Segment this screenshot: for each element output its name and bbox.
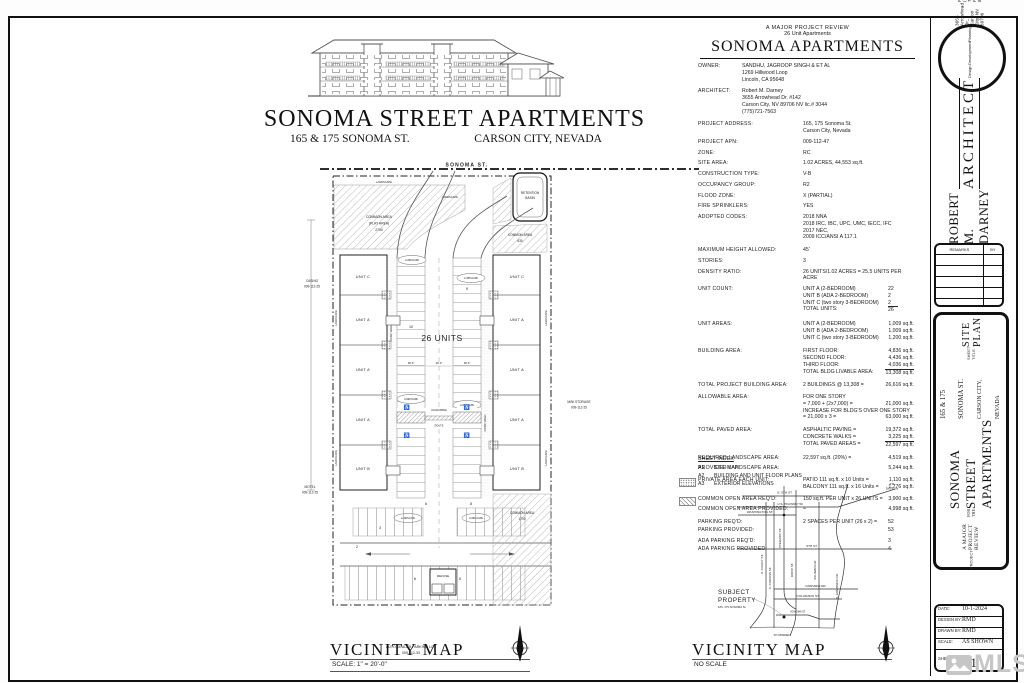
spec-text: X (PARTIAL): [803, 193, 833, 200]
vicinity-map-title: VICINITY MAP: [692, 640, 826, 660]
landscape-label: LANDSCAPE: [404, 398, 418, 401]
common-play-area-value: 2700: [375, 228, 383, 232]
spec-row: ZONE:RC: [698, 150, 914, 157]
spec-text: V-B: [803, 171, 811, 178]
wheelchair-icon: ♿: [404, 404, 410, 411]
common-play-label: COMMON AREA: [366, 215, 393, 219]
sheet-title-label: SHEET TITLE: [966, 347, 976, 360]
landscape-label: LANDSCAPE: [334, 310, 338, 326]
spec-text: 009-112-47: [803, 139, 829, 146]
remarks-table: REMARKS BY: [934, 243, 1004, 307]
spec-label: ALLOWABLE AREA:: [698, 394, 803, 421]
stall-count: 2: [356, 545, 358, 549]
sheet-index-row: A1SITE MAP: [698, 465, 914, 472]
stall-count: 6: [425, 502, 427, 506]
architect-tagline: Design Development Planning: [967, 26, 972, 78]
spec-value: 4,436 sq.ft.: [888, 355, 914, 362]
review-label: A MAJOR PROJECT REVIEW: [962, 517, 980, 550]
spec-value: 4,836 sq.ft.: [888, 348, 914, 355]
date-label: DATE:: [938, 606, 962, 611]
unit-label: UNIT A: [356, 318, 370, 322]
spec-text: SANDHU, JAGROOP SINGH & ET AL: [742, 63, 830, 70]
remarks-row: [936, 299, 1002, 307]
spec-label: TOTAL PAVED AREA:: [698, 427, 803, 448]
mls-watermark-text: MLS: [974, 650, 1024, 679]
landscape-label: LANDSCAPE: [544, 310, 548, 326]
spec-row: MAXIMUM HEIGHT ALLOWED:45': [698, 247, 914, 254]
spec-text: 1269 Hillwood Loop: [742, 70, 788, 77]
spec-text: UNIT A (2-BEDROOM): [803, 321, 856, 328]
project-main-title: SONOMA STREET APARTMENTS: [262, 106, 647, 133]
design-by-value: RMD: [962, 617, 976, 623]
wheelchair-icon: ♿: [464, 404, 470, 411]
title-rule: [692, 659, 892, 660]
subject-property-address: 165, 175 SONOMA St.: [718, 605, 746, 609]
street-name: SONOMA ST.: [790, 610, 806, 614]
drawn-by-label: DRAWN BY:: [938, 628, 962, 633]
spec-row: BUILDING AREA:FIRST FLOOR:4,836 sq.ft.SE…: [698, 348, 914, 376]
spec-text: UNIT B (ADA 2-BEDROOM): [803, 293, 868, 300]
design-by-label: DESIGN BY:: [938, 617, 962, 622]
mls-logo-icon: [946, 655, 972, 675]
street-name: 5TH ST.: [806, 544, 817, 548]
spec-text: 45': [803, 247, 810, 254]
subtitle-city: CARSON CITY, NEVADA: [474, 133, 602, 145]
site-map-scale: SCALE: 1" = 20'-0": [332, 661, 387, 668]
remarks-row: [936, 255, 1002, 266]
architect-name: ROBERT M. DARNEY: [947, 189, 992, 244]
spec-text: RC: [803, 150, 811, 157]
common-area-east-value: 630: [517, 239, 523, 243]
common-play-area: [334, 185, 465, 249]
street-name: ROOP ST.: [790, 563, 794, 578]
building-elevation-drawing: [302, 33, 564, 105]
spec-value: 13,308 sq.ft.: [885, 369, 914, 377]
dimension-label: 18'-6": [408, 361, 415, 365]
spec-label: TOTAL PROJECT BUILDING AREA:: [698, 382, 803, 389]
titleblock-city: CARSON CITY, NEVADA: [977, 380, 1001, 419]
unit-label: UNIT A: [510, 368, 524, 372]
spec-text: UNIT C (two story 3-BEDROOM): [803, 300, 879, 307]
spec-row: ARCHITECT:Robert M. Darney3655 Arrowhead…: [698, 88, 914, 115]
unit-label: UNIT A: [510, 318, 524, 322]
spec-row: TOTAL PROJECT BUILDING AREA:2 BUILDINGS …: [698, 382, 914, 389]
remarks-row: [936, 288, 1002, 299]
spec-row: OCCUPANCY GROUP:R2: [698, 182, 914, 189]
spec-row: DENSITY RATIO:26 UNITS/1.02 ACRES = 25.5…: [698, 269, 914, 283]
spec-text: TOTAL UNITS:: [803, 306, 838, 314]
architect-profession: ARCHITECT: [959, 78, 980, 189]
spec-row: PROJECT ADDRESS:165, 175 Sonoma St.Carso…: [698, 121, 914, 135]
north-arrow-icon: [508, 624, 532, 664]
spec-text: Carson City, NV 89706 NV lic.# 3044: [742, 102, 827, 109]
drawn-by-value: RMD: [962, 628, 976, 634]
accessible-route-label: ROUTE: [435, 425, 444, 428]
spec-text: 2009 ICC/ANSI A 117.1: [803, 234, 857, 241]
spec-row: PROJECT APN:009-112-47: [698, 139, 914, 146]
street-name: SALIMAN RD.: [813, 560, 817, 580]
spec-text: SECOND FLOOR:: [803, 355, 846, 362]
spec-row: ADOPTED CODES:2018 NNA2018 IRC, IBC, UPC…: [698, 214, 914, 241]
spec-value: 3,225 sq.ft.: [888, 434, 914, 441]
common-area-se-value: 1700: [518, 517, 525, 521]
spec-value: 19,372 sq.ft.: [885, 427, 914, 434]
subtitle-address: 165 & 175 SONOMA ST.: [290, 133, 410, 145]
spec-value: 21,000 sq.ft.: [885, 401, 914, 408]
neighbor-casino-apn: 009-112-25: [304, 285, 320, 289]
project-review-header: A MAJOR PROJECT REVIEW 26 Unit Apartment…: [700, 25, 915, 59]
spec-text: 3655 Arrowhead Dr. #142: [742, 95, 801, 102]
units-line: 26 Unit Apartments: [700, 31, 915, 37]
date-value: 10-1-2024: [962, 606, 987, 612]
tagline-item: Design: [967, 65, 972, 77]
titleblock-divider: [930, 18, 931, 676]
neighbor-casino-label: CASINO: [306, 279, 319, 283]
spec-value: 4,036 sq.ft.: [888, 362, 914, 369]
unit-label: UNIT A: [356, 418, 370, 422]
refuse-enclosure: REFUSE: [430, 569, 456, 595]
spec-value: 1,200 sq.ft.: [888, 335, 914, 342]
vicinity-map-drawing: E. 5TH ST. U.S. HIGHWAY 50 WASHINGTON ST…: [690, 476, 915, 644]
tagline-item: Planning: [967, 26, 972, 42]
spec-text: 2018 NNA: [803, 214, 827, 221]
wheelchair-icon: ♿: [404, 432, 410, 439]
spec-text: UNIT A (2-BEDROOM): [803, 286, 856, 293]
spec-label: UNIT COUNT:: [698, 286, 803, 314]
stall-count: 10: [409, 325, 413, 329]
landscape-label: LANDSCAPE: [464, 277, 478, 280]
spec-text: 3: [803, 258, 806, 265]
spec-label: OCCUPANCY GROUP:: [698, 182, 803, 189]
spec-value: 1,009 sq.ft.: [888, 321, 914, 328]
drawing-sheet: { "sheet": { "header": {"line1": "A MAJO…: [0, 0, 1024, 683]
spec-text: FIRST FLOOR:: [803, 348, 839, 355]
accessible-route: ACCESSIBLE ROUTE: [397, 408, 481, 428]
spec-text: Robert M. Darney: [742, 88, 783, 95]
street-name: FAIRVIEW DR.: [806, 584, 827, 588]
spec-value: 2: [888, 300, 898, 307]
neighbor-motel-label: MOTEL: [305, 485, 316, 489]
title-rule: [330, 659, 530, 660]
to-minden-label: TO MINDEN: [773, 633, 790, 637]
remarks-row: [936, 277, 1002, 288]
spec-value: 22: [888, 286, 898, 293]
street-name: S. CARSON ST.: [768, 567, 772, 589]
spec-text: Carson City, Nevada: [803, 128, 850, 135]
spec-row: CONSTRUCTION TYPE:V-B: [698, 171, 914, 178]
unit-label: UNIT B: [510, 467, 524, 471]
spec-value: 26: [888, 306, 898, 314]
spec-label: ZONE:: [698, 150, 803, 157]
spec-row: UNIT COUNT:UNIT A (2-BEDROOM)22UNIT B (A…: [698, 286, 914, 314]
spec-row: SITE AREA:1.02 ACRES, 44,553 sq.ft.: [698, 160, 914, 167]
landscape-label: LANDSCAPE: [334, 450, 338, 466]
spec-label: DENSITY RATIO:: [698, 269, 803, 283]
spec-label: UNIT AREAS:: [698, 321, 803, 341]
common-area-east-label: COMMON AREA: [508, 233, 533, 237]
spec-label: PROJECT ADDRESS:: [698, 121, 803, 135]
street-name: COLORADO ST.: [796, 594, 819, 598]
stall-count: 8: [470, 502, 472, 506]
spec-row: STORIES:3: [698, 258, 914, 265]
spec-text: 26 UNITS/1.02 ACRES = 25.5 UNITS PER ACR…: [803, 269, 914, 283]
refuse-label: REFUSE: [437, 574, 449, 578]
spec-text: R2: [803, 182, 810, 189]
landscape-label: LANDSCAPE: [442, 195, 458, 199]
street-name: E. 5TH ST.: [778, 491, 793, 495]
spec-label: FIRE SPRINKLERS:: [698, 203, 803, 210]
stall-count: 9: [466, 287, 468, 291]
scale-value: AS SHOWN: [962, 639, 993, 645]
neighbor-motel-apn: 009-112-25: [302, 491, 318, 495]
retention-basin-label: RETENTION: [521, 191, 540, 195]
spec-text: YES: [803, 203, 813, 210]
spec-row: ALLOWABLE AREA:FOR ONE STORY= 7,000 + (2…: [698, 394, 914, 421]
spec-value: 63,000 sq.ft.: [885, 414, 914, 421]
architect-address: 3655 Arrowhead Dr., Carson City, NV 8970…: [954, 3, 984, 26]
subject-property-label: PROPERTY: [718, 597, 756, 604]
architect-block: ROBERT M. DARNEY ARCHITECT Design Develo…: [933, 96, 1005, 244]
common-play-label: (PLAY AREA): [369, 222, 390, 226]
spec-text: INCREASE FOR BLDG'S OVER ONE STORY: [803, 408, 910, 415]
spec-text: 2018 IRC, IBC, UPC, UMC, IECC, IFC: [803, 221, 892, 228]
spec-text: = 21,000 x 3 =: [803, 414, 836, 421]
vicinity-map-scale: NO SCALE: [694, 661, 727, 668]
subject-property-dot: [783, 616, 786, 619]
street-name: S. EDMONDS DR.: [835, 573, 839, 599]
spec-text: ASPHALTIC PAVING =: [803, 427, 856, 434]
titleblock-project-title: SONOMA STREET APARTMENTS: [947, 419, 995, 509]
dimension-label: 26'-0": [436, 361, 443, 365]
spec-label: CONSTRUCTION TYPE:: [698, 171, 803, 178]
landscape-label: LANDSCAPE: [544, 450, 548, 466]
accessible-route-label: ACCESSIBLE: [431, 409, 447, 412]
unit-label: UNIT C: [510, 275, 524, 279]
spec-text: FOR ONE STORY: [803, 394, 846, 401]
spec-label: PROJECT APN:: [698, 139, 803, 146]
spec-label: MAXIMUM HEIGHT ALLOWED:: [698, 247, 803, 254]
title-rule: [330, 671, 530, 672]
scale-label: SCALE:: [938, 639, 962, 644]
retention-basin-label: BASIN: [525, 196, 535, 200]
spec-text: TOTAL BLDG LIVABLE AREA:: [803, 369, 873, 377]
by-header: BY: [984, 245, 1002, 254]
neighbor-ministorage-apn: 009-112-25: [571, 406, 587, 410]
unit-label: UNIT C: [356, 275, 370, 279]
spec-label: OWNER:: [698, 63, 742, 83]
spec-row: TOTAL PAVED AREA:ASPHALTIC PAVING =19,37…: [698, 427, 914, 448]
spec-value: 2: [888, 293, 898, 300]
dimension-label: 18'-6": [464, 361, 471, 365]
to-dayton-label: TO: [890, 482, 895, 486]
for-the-label: FOR THE: [966, 509, 976, 517]
street-label: SONOMA ST.: [446, 163, 489, 169]
spec-text: 165, 175 Sonoma St.: [803, 121, 852, 128]
spec-text: CONCRETE WALKS =: [803, 434, 856, 441]
spec-text: Lincoln, CA 95648: [742, 77, 784, 84]
site-plan-drawing: SONOMA ST. COMMON AREA (PLAY AREA) 2700 …: [295, 158, 705, 663]
architect-phone: PHONE: (775)721-7563 FAX: 882-9430: [957, 0, 982, 2]
spec-text: 2 BUILDINGS @ 13,308 =: [803, 382, 864, 389]
tagline-item: Development: [967, 42, 972, 66]
north-arrow-icon: [874, 624, 898, 664]
sheet-index-heading: SHEET INDEX: [698, 456, 914, 463]
street-name: U.S. HIGHWAY 50: [777, 502, 803, 506]
spec-text: THIRD FLOOR:: [803, 362, 840, 369]
unit-label: UNIT A: [356, 368, 370, 372]
common-area-se-label: COMMON AREA: [510, 511, 535, 515]
remarks-row: [936, 266, 1002, 277]
spec-label: ADOPTED CODES:: [698, 214, 803, 241]
spec-label: FLOOD ZONE:: [698, 193, 803, 200]
spec-label: BUILDING AREA:: [698, 348, 803, 376]
mls-watermark: MLS: [946, 650, 1024, 679]
spec-text: 2017 NEC,: [803, 228, 828, 235]
spec-row: FIRE SPRINKLERS:YES: [698, 203, 914, 210]
neighbor-ministorage-label: MINI STORAGE: [567, 400, 590, 404]
spec-text: UNIT B (ADA 2-BEDROOM): [803, 328, 868, 335]
wheelchair-icon: ♿: [464, 432, 470, 439]
spec-text: (775)721-7563: [742, 109, 776, 116]
spec-value: 1,009 sq.ft.: [888, 328, 914, 335]
spec-text: 1.02 ACRES, 44,553 sq.ft.: [803, 160, 864, 167]
titleblock-address: 165 & 175 SONOMA ST.: [940, 379, 965, 419]
street-name: WASHINGTON ST.: [747, 510, 774, 514]
apartments-title: SONOMA APARTMENTS: [700, 38, 915, 59]
spec-label: SITE AREA:: [698, 160, 803, 167]
project-label: PROJECT: [969, 550, 974, 569]
landscape-label: LANDSCAPE: [376, 180, 392, 184]
spec-label: STORIES:: [698, 258, 803, 265]
project-titleblock: PROJECT A MAJOR PROJECT REVIEW FOR THE S…: [933, 312, 1009, 570]
spec-text: UNIT C (two story 3-BEDROOM): [803, 335, 879, 342]
landscape-label: LANDSCAPE: [405, 259, 419, 262]
spec-row: UNIT AREAS:UNIT A (2-BEDROOM)1,009 sq.ft…: [698, 321, 914, 341]
spec-text: = 7,000 + (2x7,000) =: [803, 401, 853, 408]
project-subtitle: 165 & 175 SONOMA ST. CARSON CITY, NEVADA: [290, 133, 602, 145]
remarks-header: REMARKS: [936, 245, 984, 254]
conc-walk-label: CONC WALK: [483, 414, 487, 431]
to-dayton-label: DAYTON: [886, 487, 899, 491]
spec-row: OWNER:SANDHU, JAGROOP SINGH & ET AL1269 …: [698, 63, 914, 83]
unit-label: UNIT B: [356, 467, 370, 471]
street-name: S. CURRY ST.: [760, 554, 764, 574]
conc-walk-label: CONC WALK: [389, 324, 393, 341]
subject-property-label: SUBJECT: [718, 589, 750, 596]
street-name: STEWART ST.: [778, 528, 782, 548]
unit-count-label: 26 UNITS: [421, 333, 462, 343]
site-map-title: VICINITY MAP: [330, 640, 464, 660]
spec-label: ARCHITECT:: [698, 88, 742, 115]
unit-label: UNIT A: [510, 418, 524, 422]
spec-value: 26,616 sq.ft.: [885, 382, 914, 389]
spec-row: FLOOD ZONE:X (PARTIAL): [698, 193, 914, 200]
sheet-name: SITE PLAN: [961, 317, 983, 347]
sheet-title: SITE MAP: [714, 465, 738, 472]
